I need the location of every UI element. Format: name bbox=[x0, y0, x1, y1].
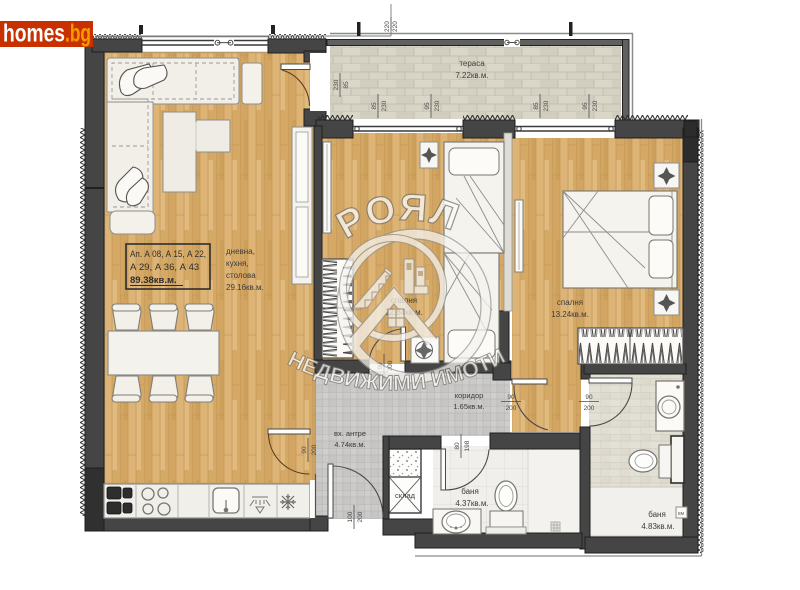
svg-text:Ап. А 08, А 15, А 22,: Ап. А 08, А 15, А 22, bbox=[130, 249, 206, 260]
svg-text:А 29, А 36, А 43: А 29, А 36, А 43 bbox=[130, 262, 199, 273]
svg-text:1.65кв.м.: 1.65кв.м. bbox=[453, 402, 484, 411]
svg-text:дневна,: дневна, bbox=[226, 247, 255, 256]
svg-text:homes: homes bbox=[3, 20, 65, 48]
svg-text:кухня,: кухня, bbox=[226, 259, 249, 268]
svg-text:90: 90 bbox=[301, 446, 308, 454]
svg-text:столова: столова bbox=[226, 271, 256, 280]
svg-text:90: 90 bbox=[507, 394, 515, 401]
svg-text:200: 200 bbox=[584, 405, 595, 412]
svg-text:95: 95 bbox=[582, 102, 589, 110]
svg-text:вх. антре: вх. антре bbox=[334, 429, 366, 438]
svg-text:230: 230 bbox=[381, 100, 388, 111]
svg-text:.bg: .bg bbox=[65, 20, 91, 48]
svg-text:200: 200 bbox=[357, 511, 364, 522]
svg-text:коридор: коридор bbox=[455, 391, 484, 400]
svg-text:спалня: спалня bbox=[557, 298, 583, 307]
svg-text:вм: вм bbox=[678, 511, 685, 517]
svg-text:7.22кв.м.: 7.22кв.м. bbox=[455, 71, 488, 80]
svg-text:13.24кв.м.: 13.24кв.м. bbox=[551, 310, 589, 319]
svg-text:95: 95 bbox=[424, 102, 431, 110]
svg-text:29.16кв.м.: 29.16кв.м. bbox=[226, 283, 264, 292]
svg-text:200: 200 bbox=[506, 405, 517, 412]
svg-text:склад: склад bbox=[395, 491, 416, 500]
svg-text:баня: баня bbox=[461, 487, 479, 496]
svg-text:80: 80 bbox=[454, 442, 461, 450]
svg-text:4.37кв.м.: 4.37кв.м. bbox=[455, 499, 488, 508]
svg-text:4.83кв.м.: 4.83кв.м. bbox=[641, 522, 674, 531]
svg-text:200: 200 bbox=[311, 444, 318, 455]
svg-text:198: 198 bbox=[464, 440, 471, 451]
svg-text:220: 220 bbox=[384, 21, 391, 32]
svg-text:баня: баня bbox=[648, 510, 666, 519]
svg-text:4.74кв.м.: 4.74кв.м. bbox=[334, 440, 365, 449]
svg-text:220: 220 bbox=[392, 21, 399, 32]
svg-text:230: 230 bbox=[592, 100, 599, 111]
svg-text:90: 90 bbox=[585, 394, 593, 401]
svg-text:85: 85 bbox=[343, 81, 350, 89]
svg-text:85: 85 bbox=[533, 102, 540, 110]
svg-text:230: 230 bbox=[543, 100, 550, 111]
svg-text:230: 230 bbox=[333, 79, 340, 90]
svg-text:89.38кв.м.: 89.38кв.м. bbox=[130, 275, 177, 286]
svg-text:85: 85 bbox=[371, 102, 378, 110]
svg-text:230: 230 bbox=[434, 100, 441, 111]
svg-text:тераса: тераса bbox=[459, 59, 485, 68]
svg-text:100: 100 bbox=[347, 511, 354, 522]
